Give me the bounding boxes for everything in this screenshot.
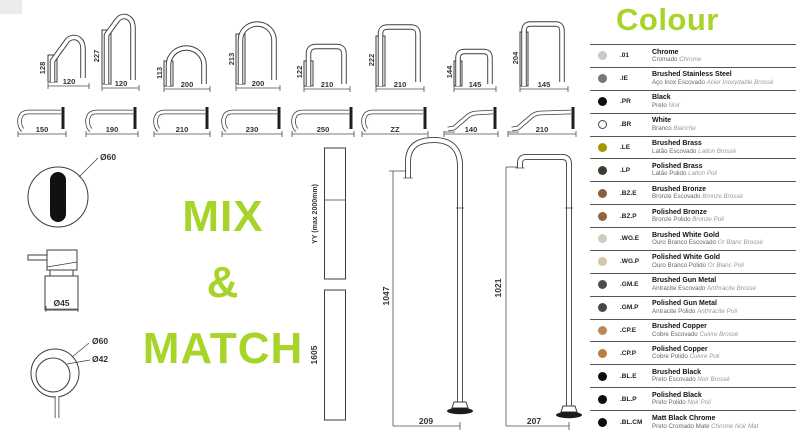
swatch-cell bbox=[590, 120, 620, 129]
dim-width: 190 bbox=[106, 125, 119, 134]
mix-and-match-headline: MIX & MATCH bbox=[140, 184, 306, 382]
dim-width: 210 bbox=[394, 80, 407, 89]
dim-width: ZZ bbox=[390, 125, 400, 134]
headline-line3: MATCH bbox=[140, 316, 306, 382]
headline-line2: & bbox=[140, 250, 306, 316]
swatch-cell bbox=[590, 418, 620, 427]
colour-name: White bbox=[652, 117, 796, 124]
colour-subtitle: Preto Escovado Noir Brossé bbox=[652, 377, 796, 383]
legend-list: .01 Chrome Cromado Chrome .IE Brushed St… bbox=[590, 44, 796, 434]
dim-width: 210 bbox=[536, 125, 549, 134]
colour-subtitle: Cobre Polido Cuivre Poli bbox=[652, 354, 796, 360]
colour-swatch-dot bbox=[598, 212, 607, 221]
dim-height: 227 bbox=[92, 50, 101, 63]
colour-subtitle: Preto Cromado Mate Chrome Noir Mat bbox=[652, 424, 796, 430]
colour-name: Brushed White Gold bbox=[652, 232, 796, 239]
wall-spout-angled-140: 140 bbox=[440, 102, 502, 138]
swatch-cell bbox=[590, 143, 620, 152]
dim-width: 210 bbox=[176, 125, 189, 134]
colour-name: Polished Black bbox=[652, 392, 796, 399]
colour-text: Matt Black Chrome Preto Cromado Mate Chr… bbox=[652, 415, 796, 430]
dim-height: 113 bbox=[155, 67, 164, 79]
colour-subtitle: Preto Polido Noir Poli bbox=[652, 400, 796, 406]
colour-text: Brushed Stainless Steel Aço Inox Escovad… bbox=[652, 71, 796, 86]
legend-row: .01 Chrome Cromado Chrome bbox=[590, 45, 796, 68]
colour-swatch-dot bbox=[598, 166, 607, 175]
colour-name: Brushed Stainless Steel bbox=[652, 71, 796, 78]
colour-swatch-dot bbox=[598, 120, 607, 129]
swatch-cell bbox=[590, 372, 620, 381]
spout-face-drawing: Ø60 bbox=[26, 146, 136, 246]
colour-subtitle: Aço Inox Escovado Acier Inoxydable Bross… bbox=[652, 80, 796, 86]
colour-code: .WG.E bbox=[620, 235, 652, 242]
riser-column-custom: YY (max 2000mm) bbox=[300, 146, 348, 282]
colour-name: Brushed Copper bbox=[652, 323, 796, 330]
floor-spout-square-1021: 1021 207 bbox=[470, 148, 580, 434]
colour-text: Black Preto Noir bbox=[652, 94, 796, 109]
colour-swatch-dot bbox=[598, 349, 607, 358]
colour-name: Brushed Gun Metal bbox=[652, 277, 796, 284]
swatch-cell bbox=[590, 326, 620, 335]
colour-text: Polished Copper Cobre Polido Cuivre Poli bbox=[652, 346, 796, 361]
colour-subtitle: Ouro Branco Polido Or Blanc Poli bbox=[652, 263, 796, 269]
handle-drawing: Ø45 bbox=[28, 246, 108, 318]
swatch-cell bbox=[590, 349, 620, 358]
dim-height: 1021 bbox=[493, 278, 503, 297]
dim-handle-diameter: Ø45 bbox=[53, 298, 69, 308]
colour-code: .GM.E bbox=[620, 281, 652, 288]
swatch-cell bbox=[590, 303, 620, 312]
dim-height: 128 bbox=[38, 62, 47, 75]
colour-name: Chrome bbox=[652, 49, 796, 56]
wall-spout-150: 150 bbox=[14, 102, 70, 138]
dim-width: 120 bbox=[115, 79, 128, 88]
colour-subtitle: Branco Blanche bbox=[652, 126, 796, 132]
colour-code: .BZ.E bbox=[620, 190, 652, 197]
legend-row: .CP.E Brushed Copper Cobre Escovado Cuiv… bbox=[590, 320, 796, 343]
colour-text: White Branco Blanche bbox=[652, 117, 796, 132]
colour-subtitle: Latão Polido Laiton Poli bbox=[652, 171, 796, 177]
colour-text: Polished White Gold Ouro Branco Polido O… bbox=[652, 254, 796, 269]
colour-name: Polished Copper bbox=[652, 346, 796, 353]
wall-spout-210: 210 bbox=[150, 102, 214, 138]
dim-width: 210 bbox=[321, 80, 334, 89]
dim-width: 230 bbox=[246, 125, 259, 134]
colour-code: .BL.E bbox=[620, 373, 652, 380]
colour-swatch-dot bbox=[598, 51, 607, 60]
colour-subtitle: Antracite Escovado Anthracite Brossé bbox=[652, 286, 796, 292]
colour-name: Brushed Brass bbox=[652, 140, 796, 147]
dim-width: 200 bbox=[181, 80, 194, 89]
legend-row: .BZ.P Polished Bronze Bronze Polido Bron… bbox=[590, 205, 796, 228]
colour-code: .LP bbox=[620, 167, 652, 174]
wall-spout-230: 230 bbox=[218, 102, 286, 138]
colour-swatch-dot bbox=[598, 280, 607, 289]
swatch-cell bbox=[590, 74, 620, 83]
dim-ring-inner: Ø42 bbox=[92, 354, 108, 364]
colour-subtitle: Preto Noir bbox=[652, 103, 796, 109]
colour-subtitle: Latão Escovado Laiton Brossé bbox=[652, 149, 796, 155]
dim-height: 213 bbox=[227, 53, 236, 66]
spout-drawing-square-204: 145 204 bbox=[510, 18, 576, 92]
colour-text: Brushed Gun Metal Antracite Escovado Ant… bbox=[652, 277, 796, 292]
legend-row: .GM.E Brushed Gun Metal Antracite Escova… bbox=[590, 274, 796, 297]
dim-height: 204 bbox=[511, 51, 520, 64]
wall-spout-250: 250 bbox=[288, 102, 358, 138]
colour-name: Polished Gun Metal bbox=[652, 300, 796, 307]
dim-width: 207 bbox=[527, 416, 541, 426]
legend-row: .BL.P Polished Black Preto Polido Noir P… bbox=[590, 388, 796, 411]
wall-spout-angled-210: 210 bbox=[504, 102, 580, 138]
spout-drawing-square-222: 210 222 bbox=[366, 20, 432, 92]
colour-text: Brushed Brass Latão Escovado Laiton Bros… bbox=[652, 140, 796, 155]
dim-width: 145 bbox=[538, 80, 551, 89]
dim-width: 145 bbox=[469, 80, 482, 89]
colour-swatch-dot bbox=[598, 234, 607, 243]
legend-row: .IE Brushed Stainless Steel Aço Inox Esc… bbox=[590, 68, 796, 91]
legend-row: .WG.P Polished White Gold Ouro Branco Po… bbox=[590, 251, 796, 274]
colour-code: .GM.P bbox=[620, 304, 652, 311]
scan-artifact bbox=[0, 0, 22, 14]
colour-code: .BZ.P bbox=[620, 213, 652, 220]
swatch-cell bbox=[590, 189, 620, 198]
colour-code: .BL.CM bbox=[620, 419, 652, 426]
dim-width: 200 bbox=[252, 79, 265, 88]
headline-line1: MIX bbox=[140, 184, 306, 250]
riser-label: YY (max 2000mm) bbox=[312, 184, 319, 244]
legend-row: .PR Black Preto Noir bbox=[590, 91, 796, 114]
swatch-cell bbox=[590, 51, 620, 60]
dim-width: 250 bbox=[317, 125, 330, 134]
colour-swatch-dot bbox=[598, 97, 607, 106]
colour-code: .WG.P bbox=[620, 258, 652, 265]
colour-text: Brushed White Gold Ouro Branco Escovado … bbox=[652, 232, 796, 247]
colour-text: Polished Gun Metal Antracite Polido Anth… bbox=[652, 300, 796, 315]
dim-height: 122 bbox=[295, 66, 304, 79]
riser-column-1605: 1605 bbox=[300, 288, 348, 422]
legend-row: .BL.CM Matt Black Chrome Preto Cromado M… bbox=[590, 411, 796, 434]
dim-ring-outer: Ø60 bbox=[92, 336, 108, 346]
wall-spout-190: 190 bbox=[82, 102, 142, 138]
legend-row: .LE Brushed Brass Latão Escovado Laiton … bbox=[590, 137, 796, 160]
colour-subtitle: Cromado Chrome bbox=[652, 57, 796, 63]
dim-width: 150 bbox=[36, 125, 49, 134]
colour-title: Colour bbox=[616, 2, 719, 38]
colour-code: .01 bbox=[620, 52, 652, 59]
colour-swatch-dot bbox=[598, 395, 607, 404]
colour-swatch-dot bbox=[598, 326, 607, 335]
spout-drawing-arch-213: 200 213 bbox=[226, 16, 288, 92]
dim-height: 1047 bbox=[381, 286, 391, 305]
colour-subtitle: Antracite Polido Anthracite Poli bbox=[652, 309, 796, 315]
colour-subtitle: Ouro Branco Escovado Or Blanc Brossé bbox=[652, 240, 796, 246]
dim-width: 209 bbox=[419, 416, 433, 426]
swatch-cell bbox=[590, 234, 620, 243]
colour-subtitle: Bronze Polido Bronze Poli bbox=[652, 217, 796, 223]
colour-code: .PR bbox=[620, 98, 652, 105]
legend-row: .GM.P Polished Gun Metal Antracite Polid… bbox=[590, 297, 796, 320]
riser-label: 1605 bbox=[309, 345, 319, 364]
colour-text: Chrome Cromado Chrome bbox=[652, 49, 796, 64]
colour-name: Matt Black Chrome bbox=[652, 415, 796, 422]
colour-code: .CP.P bbox=[620, 350, 652, 357]
spout-drawing-square-122: 210 122 bbox=[294, 38, 358, 92]
colour-swatch-dot bbox=[598, 257, 607, 266]
dim-height: 144 bbox=[445, 65, 454, 78]
colour-text: Polished Brass Latão Polido Laiton Poli bbox=[652, 163, 796, 178]
colour-swatch-dot bbox=[598, 143, 607, 152]
colour-name: Brushed Bronze bbox=[652, 186, 796, 193]
legend-row: .WG.E Brushed White Gold Ouro Branco Esc… bbox=[590, 228, 796, 251]
colour-swatch-dot bbox=[598, 303, 607, 312]
colour-subtitle: Bronze Escovado Bronze Brossé bbox=[652, 194, 796, 200]
swatch-cell bbox=[590, 212, 620, 221]
legend-row: .BR White Branco Blanche bbox=[590, 114, 796, 137]
legend-row: .LP Polished Brass Latão Polido Laiton P… bbox=[590, 159, 796, 182]
colour-code: .BR bbox=[620, 121, 652, 128]
colour-name: Brushed Black bbox=[652, 369, 796, 376]
colour-name: Black bbox=[652, 94, 796, 101]
legend-row: .BL.E Brushed Black Preto Escovado Noir … bbox=[590, 365, 796, 388]
colour-swatch-dot bbox=[598, 372, 607, 381]
colour-text: Brushed Copper Cobre Escovado Cuivre Bro… bbox=[652, 323, 796, 338]
ring-handle-drawing: Ø60 Ø42 bbox=[26, 330, 126, 434]
colour-text: Polished Bronze Bronze Polido Bronze Pol… bbox=[652, 209, 796, 224]
swatch-cell bbox=[590, 280, 620, 289]
colour-text: Brushed Bronze Bronze Escovado Bronze Br… bbox=[652, 186, 796, 201]
dim-width: 120 bbox=[63, 77, 76, 86]
colour-code: .LE bbox=[620, 144, 652, 151]
spout-drawing-arch-113: 200 113 bbox=[154, 40, 220, 92]
wall-spout-zz: ZZ bbox=[358, 102, 432, 138]
colour-swatch-dot bbox=[598, 74, 607, 83]
colour-swatch-dot bbox=[598, 418, 607, 427]
legend-row: .CP.P Polished Copper Cobre Polido Cuivr… bbox=[590, 342, 796, 365]
colour-name: Polished White Gold bbox=[652, 254, 796, 261]
colour-text: Brushed Black Preto Escovado Noir Brossé bbox=[652, 369, 796, 384]
dim-width: 140 bbox=[465, 125, 478, 134]
catalog-page: 120 128 120 227 200 113 bbox=[0, 0, 800, 434]
spout-drawing-square-144: 145 144 bbox=[444, 44, 504, 92]
swatch-cell bbox=[590, 395, 620, 404]
floor-spout-curved-1047: 1047 209 bbox=[380, 136, 472, 434]
colour-name: Polished Bronze bbox=[652, 209, 796, 216]
colour-code: .BL.P bbox=[620, 396, 652, 403]
dim-height: 222 bbox=[367, 54, 376, 67]
dim-face-diameter: Ø60 bbox=[100, 152, 116, 162]
swatch-cell bbox=[590, 97, 620, 106]
swatch-cell bbox=[590, 257, 620, 266]
legend-row: .BZ.E Brushed Bronze Bronze Escovado Bro… bbox=[590, 182, 796, 205]
colour-text: Polished Black Preto Polido Noir Poli bbox=[652, 392, 796, 407]
colour-code: .IE bbox=[620, 75, 652, 82]
colour-code: .CP.E bbox=[620, 327, 652, 334]
colour-name: Polished Brass bbox=[652, 163, 796, 170]
swatch-cell bbox=[590, 166, 620, 175]
colour-swatch-dot bbox=[598, 189, 607, 198]
colour-subtitle: Cobre Escovado Cuivre Brossé bbox=[652, 332, 796, 338]
